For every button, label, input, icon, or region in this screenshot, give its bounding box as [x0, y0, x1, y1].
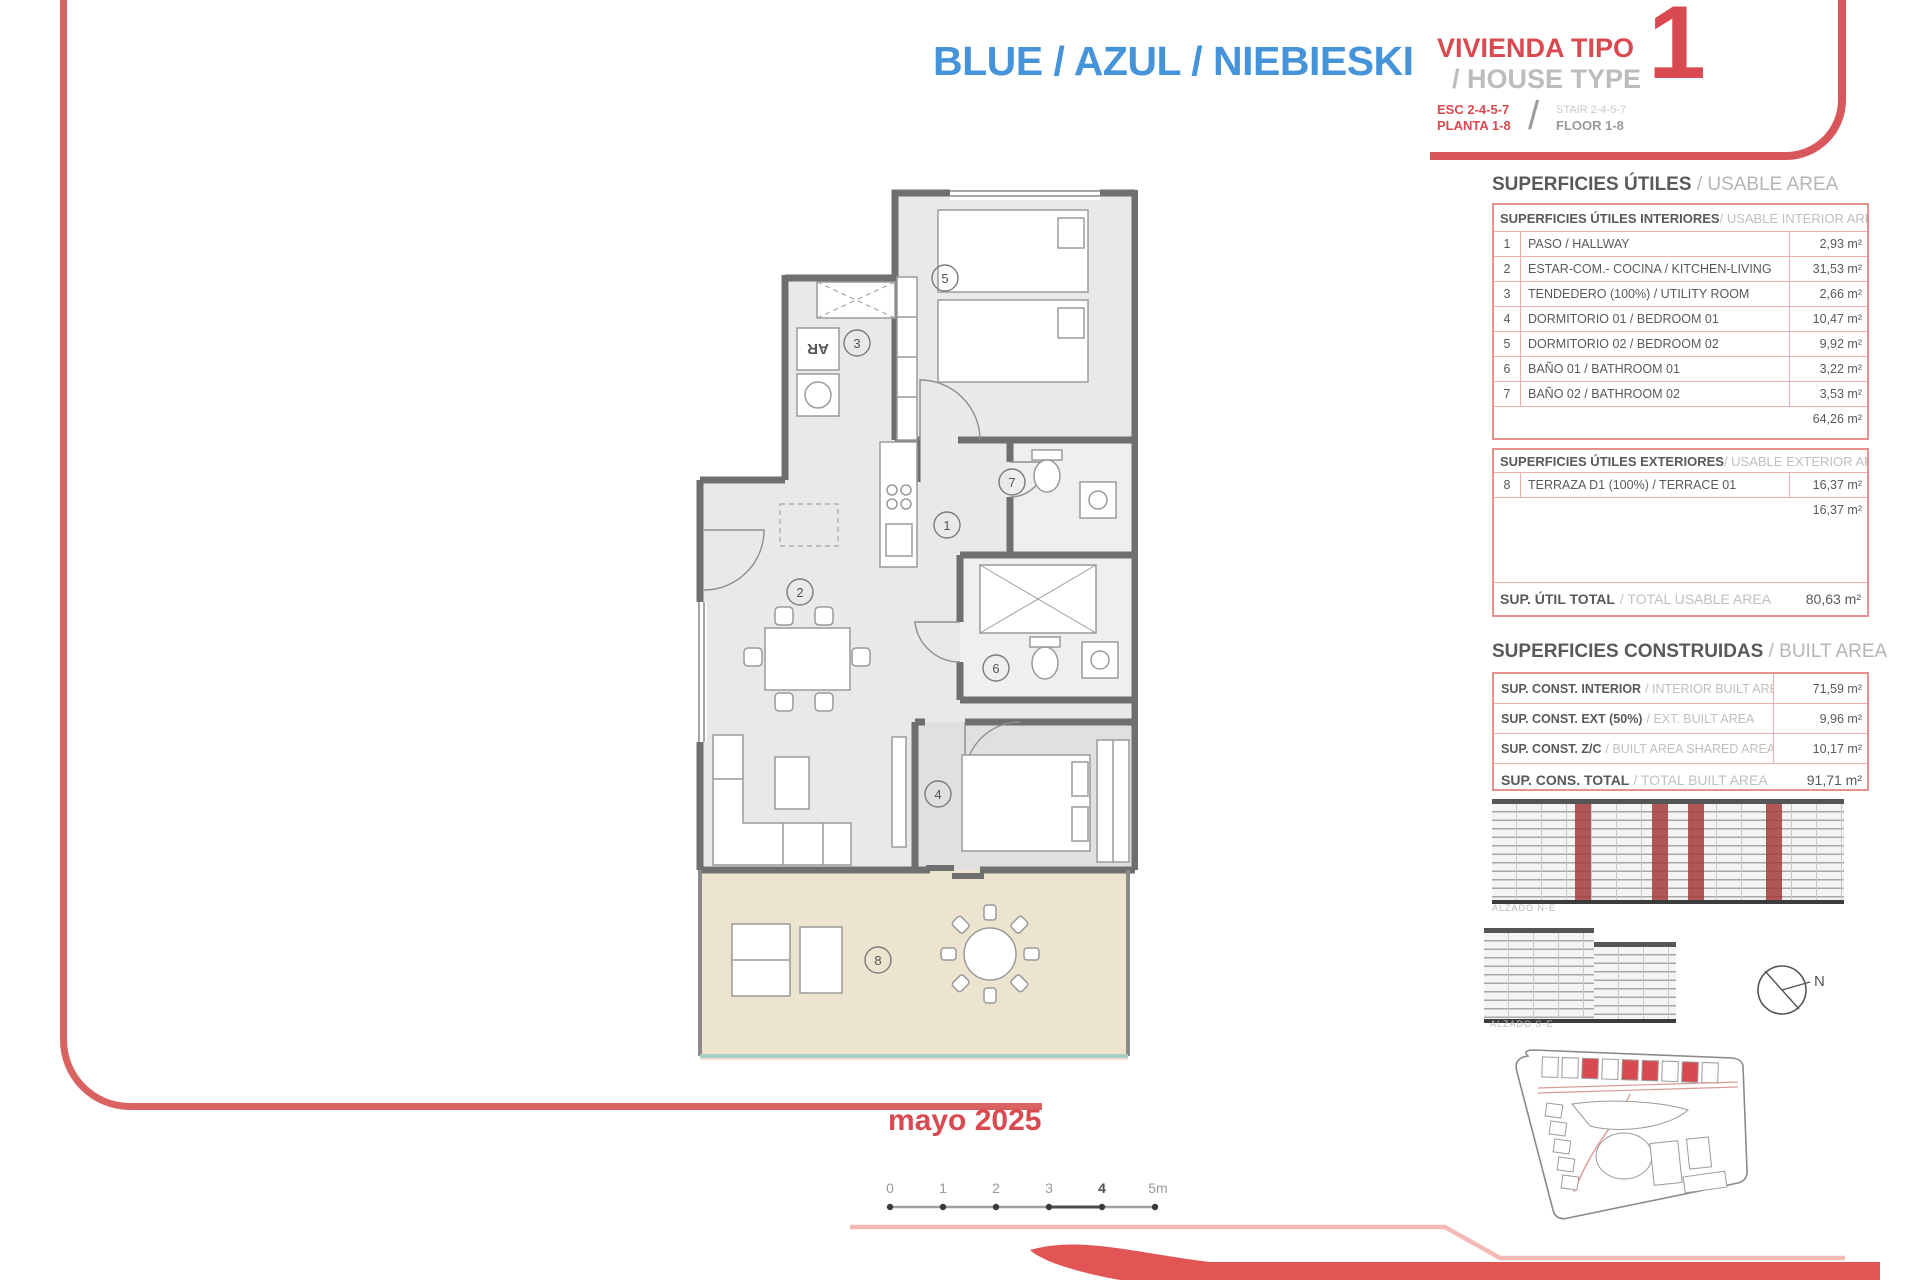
house-type-label-en: / HOUSE TYPE [1452, 64, 1641, 95]
total-value: 80,63 m² [1806, 591, 1861, 607]
row-value: 16,37 m² [1789, 473, 1867, 497]
row-number: 1 [1494, 232, 1521, 256]
floor-en: FLOOR 1-8 [1556, 118, 1626, 134]
total-value: 91,71 m² [1774, 764, 1867, 796]
total-label-en: / TOTAL USABLE AREA [1620, 591, 1806, 607]
table-row: 2 ESTAR-COM.- COCINA / KITCHEN-LIVING 31… [1494, 257, 1867, 282]
row-number: 5 [1494, 332, 1521, 356]
room-number-3: 3 [853, 336, 860, 351]
room-number-7: 7 [1008, 475, 1015, 490]
table-header: SUPERFICIES ÚTILES EXTERIORES / USABLE E… [1494, 450, 1867, 473]
table-row: 4 DORMITORIO 01 / BEDROOM 01 10,47 m² [1494, 307, 1867, 332]
stair-en: STAIR 2-4-5-7 [1556, 102, 1626, 118]
built-area-title: SUPERFICIES CONSTRUIDAS / BUILT AREA [1492, 641, 1887, 663]
room-number-1: 1 [943, 518, 950, 533]
row-number: 8 [1494, 473, 1521, 497]
row-number: 3 [1494, 282, 1521, 306]
scale-label-2: 2 [992, 1180, 1000, 1196]
header-es: SUPERFICIES ÚTILES EXTERIORES [1500, 454, 1724, 469]
table-row: SUP. CONST. INTERIOR / INTERIOR BUILT AR… [1494, 674, 1867, 704]
row-label: DORMITORIO 01 / BEDROOM 01 [1521, 307, 1789, 331]
usable-total-row: SUP. ÚTIL TOTAL / TOTAL USABLE AREA 80,6… [1494, 582, 1867, 615]
row-number: 7 [1494, 382, 1521, 406]
row-value: 2,66 m² [1789, 282, 1867, 306]
row-value: 71,59 m² [1773, 674, 1867, 703]
header-en: / USABLE EXTERIOR AREA [1724, 454, 1867, 469]
sink [1082, 642, 1118, 678]
usable-area-title-es: SUPERFICIES ÚTILES [1492, 174, 1692, 195]
floor-plan: AR 1 2 3 4 5 6 7 8 [680, 182, 1138, 1070]
usable-area-title: SUPERFICIES ÚTILES / USABLE AREA [1492, 174, 1838, 196]
built-area-title-es: SUPERFICIES CONSTRUIDAS [1492, 641, 1763, 662]
floor-es: PLANTA 1-8 [1437, 118, 1511, 134]
sink [1080, 482, 1116, 518]
house-type-number: 1 [1648, 0, 1706, 103]
row-label: PASO / HALLWAY [1521, 232, 1789, 256]
kitchen-cabinets [897, 277, 917, 440]
table-header: SUPERFICIES ÚTILES INTERIORES / USABLE I… [1494, 205, 1867, 232]
page-title: BLUE / AZUL / NIEBIESKI [933, 38, 1414, 85]
exterior-subtotal: 16,37 m² [1494, 498, 1867, 522]
row-label-es: SUP. CONST. INTERIOR [1501, 682, 1641, 696]
toilet-tank [1030, 637, 1060, 647]
room-number-5: 5 [941, 271, 948, 286]
row-label: BAÑO 02 / BATHROOM 02 [1521, 382, 1789, 406]
scale-bar: 0 1 2 3 4 5m [880, 1175, 1170, 1220]
table-row: 6 BAÑO 01 / BATHROOM 01 3,22 m² [1494, 357, 1867, 382]
row-label-en: / INTERIOR BUILT AREA [1645, 682, 1773, 696]
site-plan [1502, 1046, 1764, 1228]
scale-label-0: 0 [886, 1180, 894, 1196]
stair-es: ESC 2-4-5-7 [1437, 102, 1511, 118]
row-value: 9,92 m² [1789, 332, 1867, 356]
coffee-table [775, 757, 809, 809]
highlight-strip [1688, 804, 1704, 900]
north-arrow-icon: N [1752, 956, 1837, 1018]
usable-area-title-en: / USABLE AREA [1697, 174, 1839, 195]
usable-exterior-table: SUPERFICIES ÚTILES EXTERIORES / USABLE E… [1492, 448, 1869, 617]
toilet [1032, 647, 1058, 679]
table-row: 7 BAÑO 02 / BATHROOM 02 3,53 m² [1494, 382, 1867, 407]
elevation-drawing-2-left [1484, 928, 1594, 1023]
room-number-6: 6 [992, 661, 999, 676]
row-value: 2,93 m² [1789, 232, 1867, 256]
bottom-swoosh [690, 1218, 1920, 1280]
row-label: DORMITORIO 02 / BEDROOM 02 [1521, 332, 1789, 356]
scale-label-4: 4 [1098, 1180, 1106, 1196]
built-area-table: SUP. CONST. INTERIOR / INTERIOR BUILT AR… [1492, 672, 1869, 791]
row-label-en: / BUILT AREA SHARED AREAS [1605, 742, 1773, 756]
elevation-drawing-1 [1492, 799, 1844, 904]
stair-floor-es: ESC 2-4-5-7 PLANTA 1-8 [1437, 102, 1511, 134]
row-number: 4 [1494, 307, 1521, 331]
table-row: SUP. CONST. EXT (50%) / EXT. BUILT AREA … [1494, 704, 1867, 734]
terrace-table [964, 928, 1016, 980]
stair-floor-en: STAIR 2-4-5-7 FLOOR 1-8 [1556, 102, 1626, 134]
bed-double [962, 755, 1090, 851]
header-divider: / [1528, 94, 1539, 139]
scale-label-3: 3 [1045, 1180, 1053, 1196]
scale-label-1: 1 [939, 1180, 947, 1196]
row-label-es: SUP. CONST. Z/C [1501, 742, 1601, 756]
highlight-strip [1575, 804, 1591, 900]
interior-subtotal: 64,26 m² [1494, 407, 1867, 431]
usable-interior-table: SUPERFICIES ÚTILES INTERIORES / USABLE I… [1492, 203, 1869, 440]
table-row: 3 TENDEDERO (100%) / UTILITY ROOM 2,66 m… [1494, 282, 1867, 307]
north-label: N [1814, 973, 1825, 990]
house-type-label-es: VIVIENDA TIPO [1437, 33, 1634, 64]
plan-sheet: BLUE / AZUL / NIEBIESKI VIVIENDA TIPO / … [0, 0, 1920, 1280]
toilet [1034, 460, 1060, 492]
table-row: 1 PASO / HALLWAY 2,93 m² [1494, 232, 1867, 257]
lounger [800, 927, 842, 993]
highlight-strip [1652, 804, 1668, 900]
row-label-en: / EXT. BUILT AREA [1646, 712, 1773, 726]
date-label: mayo 2025 [888, 1104, 1041, 1138]
row-value: 10,17 m² [1773, 734, 1867, 763]
row-value: 3,53 m² [1789, 382, 1867, 406]
elevation-1-label: ALZADO N-E [1492, 903, 1556, 913]
row-label: ESTAR-COM.- COCINA / KITCHEN-LIVING [1521, 257, 1789, 281]
room-number-4: 4 [934, 787, 941, 802]
row-number: 2 [1494, 257, 1521, 281]
tv-unit [892, 737, 906, 847]
row-value: 3,22 m² [1789, 357, 1867, 381]
washer-label: AR [807, 340, 829, 357]
header-es: SUPERFICIES ÚTILES INTERIORES [1500, 211, 1720, 226]
row-label: TERRAZA D1 (100%) / TERRACE 01 [1521, 473, 1789, 497]
table-row: SUP. CONST. Z/C / BUILT AREA SHARED AREA… [1494, 734, 1867, 764]
room-number-2: 2 [796, 585, 803, 600]
dining-table [765, 628, 850, 690]
scale-label-5: 5m [1148, 1180, 1167, 1196]
highlight-strip [1766, 804, 1782, 900]
dryer [797, 374, 839, 416]
row-label: TENDEDERO (100%) / UTILITY ROOM [1521, 282, 1789, 306]
elevation-2-label: ALZADO S-E [1490, 1019, 1554, 1029]
total-label-es: SUP. ÚTIL TOTAL [1500, 591, 1615, 607]
table-row: 8 TERRAZA D1 (100%) / TERRACE 01 16,37 m… [1494, 473, 1867, 498]
row-number: 6 [1494, 357, 1521, 381]
total-label-en: / TOTAL BUILT AREA [1633, 772, 1774, 788]
elevation-drawing-2-right [1594, 942, 1676, 1023]
built-area-title-en: / BUILT AREA [1769, 641, 1888, 662]
built-total-row: SUP. CONS. TOTAL / TOTAL BUILT AREA 91,7… [1494, 764, 1867, 796]
row-value: 9,96 m² [1773, 704, 1867, 733]
toilet-tank [1032, 450, 1062, 460]
row-value: 10,47 m² [1789, 307, 1867, 331]
header-en: / USABLE INTERIOR AREA [1720, 211, 1867, 226]
total-label-es: SUP. CONS. TOTAL [1501, 772, 1629, 788]
row-value: 31,53 m² [1789, 257, 1867, 281]
table-row: 5 DORMITORIO 02 / BEDROOM 02 9,92 m² [1494, 332, 1867, 357]
row-label: BAÑO 01 / BATHROOM 01 [1521, 357, 1789, 381]
row-label-es: SUP. CONST. EXT (50%) [1501, 712, 1642, 726]
room-number-8: 8 [874, 953, 881, 968]
